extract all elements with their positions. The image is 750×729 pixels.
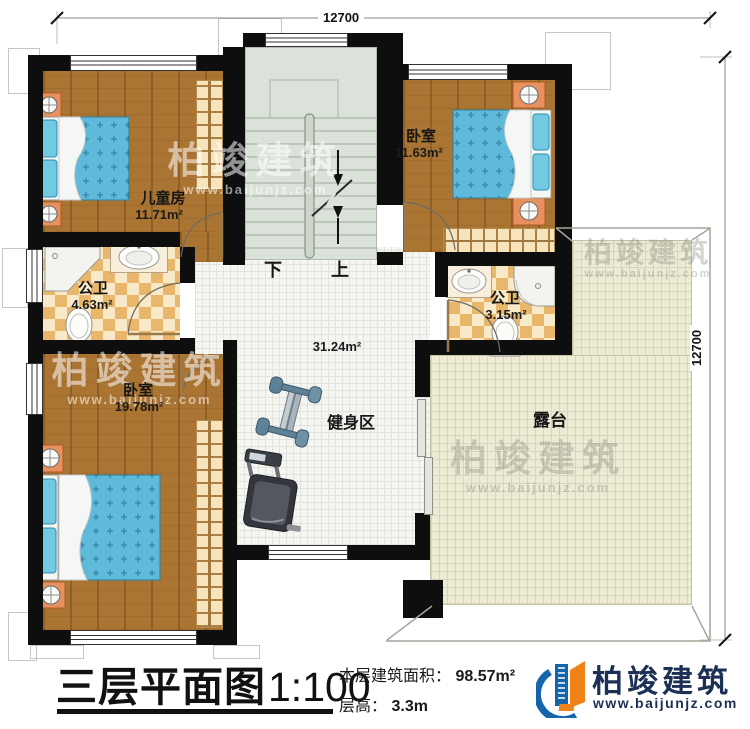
company-logo-website: www.baijunjz.com [593, 695, 738, 711]
floor-height-label: 层高： [339, 698, 387, 715]
company-logo-icon [536, 658, 588, 718]
page-title: 三层平面图 [56, 653, 266, 713]
floor-plan: 柏竣建筑 www.baijunjz.com 柏竣建筑 www.baijunjz.… [0, 0, 750, 729]
label-bedroom-bl: 卧室 [123, 383, 153, 398]
area-bath-right: 3.15m² [485, 308, 526, 321]
floor-area-line: 本层建筑面积： 98.57m² [339, 662, 515, 686]
label-terrace: 露台 [533, 412, 567, 429]
title-row: 三层平面图 1:100 [56, 653, 371, 713]
label-stairs-down: 下 [264, 261, 282, 279]
label-gym: 健身区 [327, 416, 375, 432]
door-leaves [128, 202, 448, 397]
label-stairs-up: 上 [331, 261, 349, 279]
area-bath-left: 4.63m² [71, 298, 112, 311]
dimension-ticks [51, 12, 731, 646]
floor-height-value: 3.3m [391, 698, 427, 715]
label-bedroom-tr: 卧室 [406, 129, 436, 144]
plan-linework [0, 0, 750, 729]
dimension-lines [57, 11, 732, 640]
label-bath-left: 公卫 [78, 281, 108, 296]
stairs [245, 80, 377, 258]
terrace-parapet [386, 228, 710, 641]
stair-arrow-down [333, 174, 343, 186]
dimension-top: 12700 [318, 11, 364, 25]
label-children-room: 儿童房 [140, 191, 185, 206]
floor-area-label: 本层建筑面积： [339, 668, 451, 685]
floor-height-line: 层高： 3.3m [339, 692, 428, 716]
area-bedroom-tr: 11.63m² [395, 146, 443, 159]
stair-arrow-up [333, 206, 343, 218]
label-bath-right: 公卫 [490, 291, 520, 306]
floor-area-value: 98.57m² [455, 668, 515, 685]
area-hall: 31.24m² [313, 340, 361, 353]
dimension-right: 12700 [690, 325, 704, 371]
area-bedroom-bl: 19.78m² [115, 400, 163, 413]
title-underline [57, 709, 333, 714]
stair-railing [305, 114, 314, 258]
area-children-room: 11.71m² [135, 208, 183, 221]
